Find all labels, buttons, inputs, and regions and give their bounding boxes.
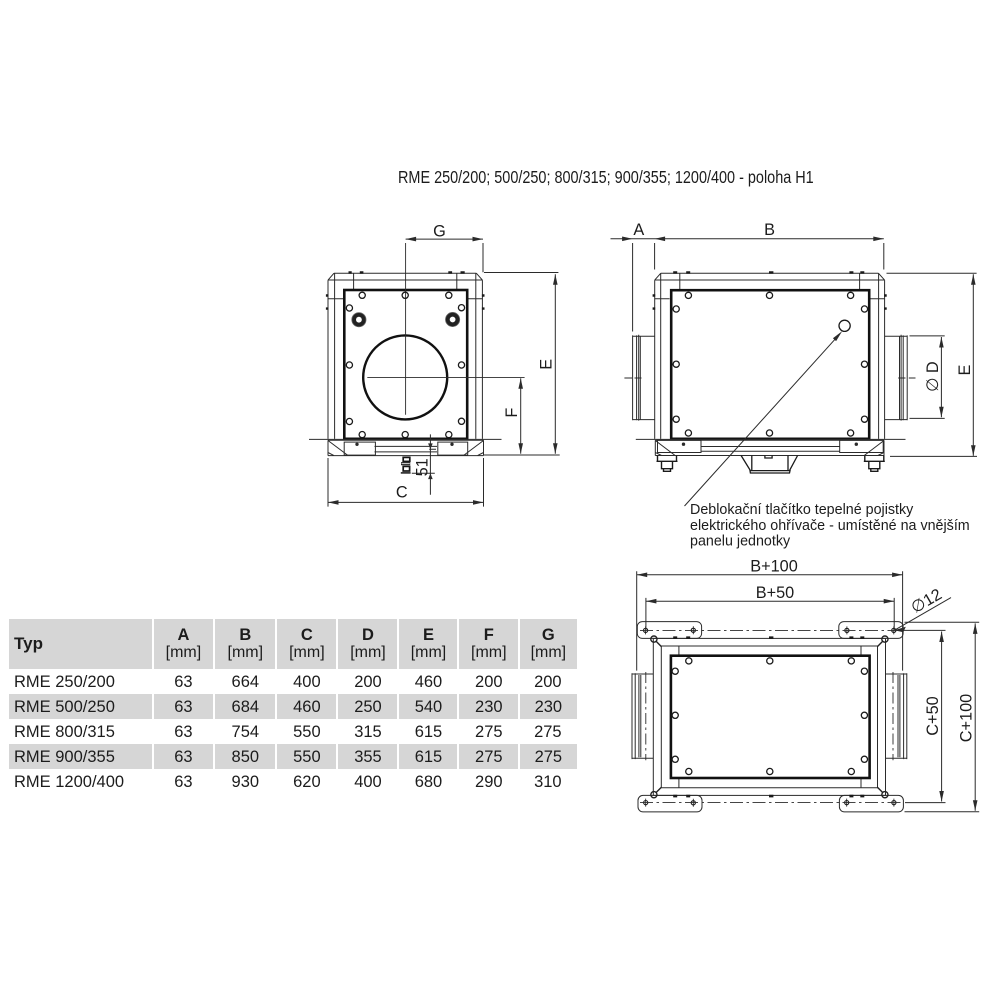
svg-text:51: 51 [413,458,431,476]
svg-text:G: G [433,222,446,240]
svg-text:C+50: C+50 [924,696,942,735]
svg-text:∅ D: ∅ D [924,361,942,391]
svg-text:F: F [503,408,521,418]
svg-text:E: E [537,359,555,370]
svg-text:B+100: B+100 [750,558,798,576]
svg-text:B+50: B+50 [756,584,794,602]
svg-text:B: B [764,221,775,239]
svg-text:panelu jednotky: panelu jednotky [690,533,791,549]
svg-text:E: E [956,364,974,375]
svg-text:C: C [396,484,408,502]
svg-text:C+100: C+100 [958,694,976,742]
svg-text:Deblokační tlačítko tepelné po: Deblokační tlačítko tepelné pojistky [690,502,914,518]
svg-text:elektrického ohřívače - umístě: elektrického ohřívače - umístěné na vněj… [690,518,970,534]
svg-text:A: A [633,221,644,239]
